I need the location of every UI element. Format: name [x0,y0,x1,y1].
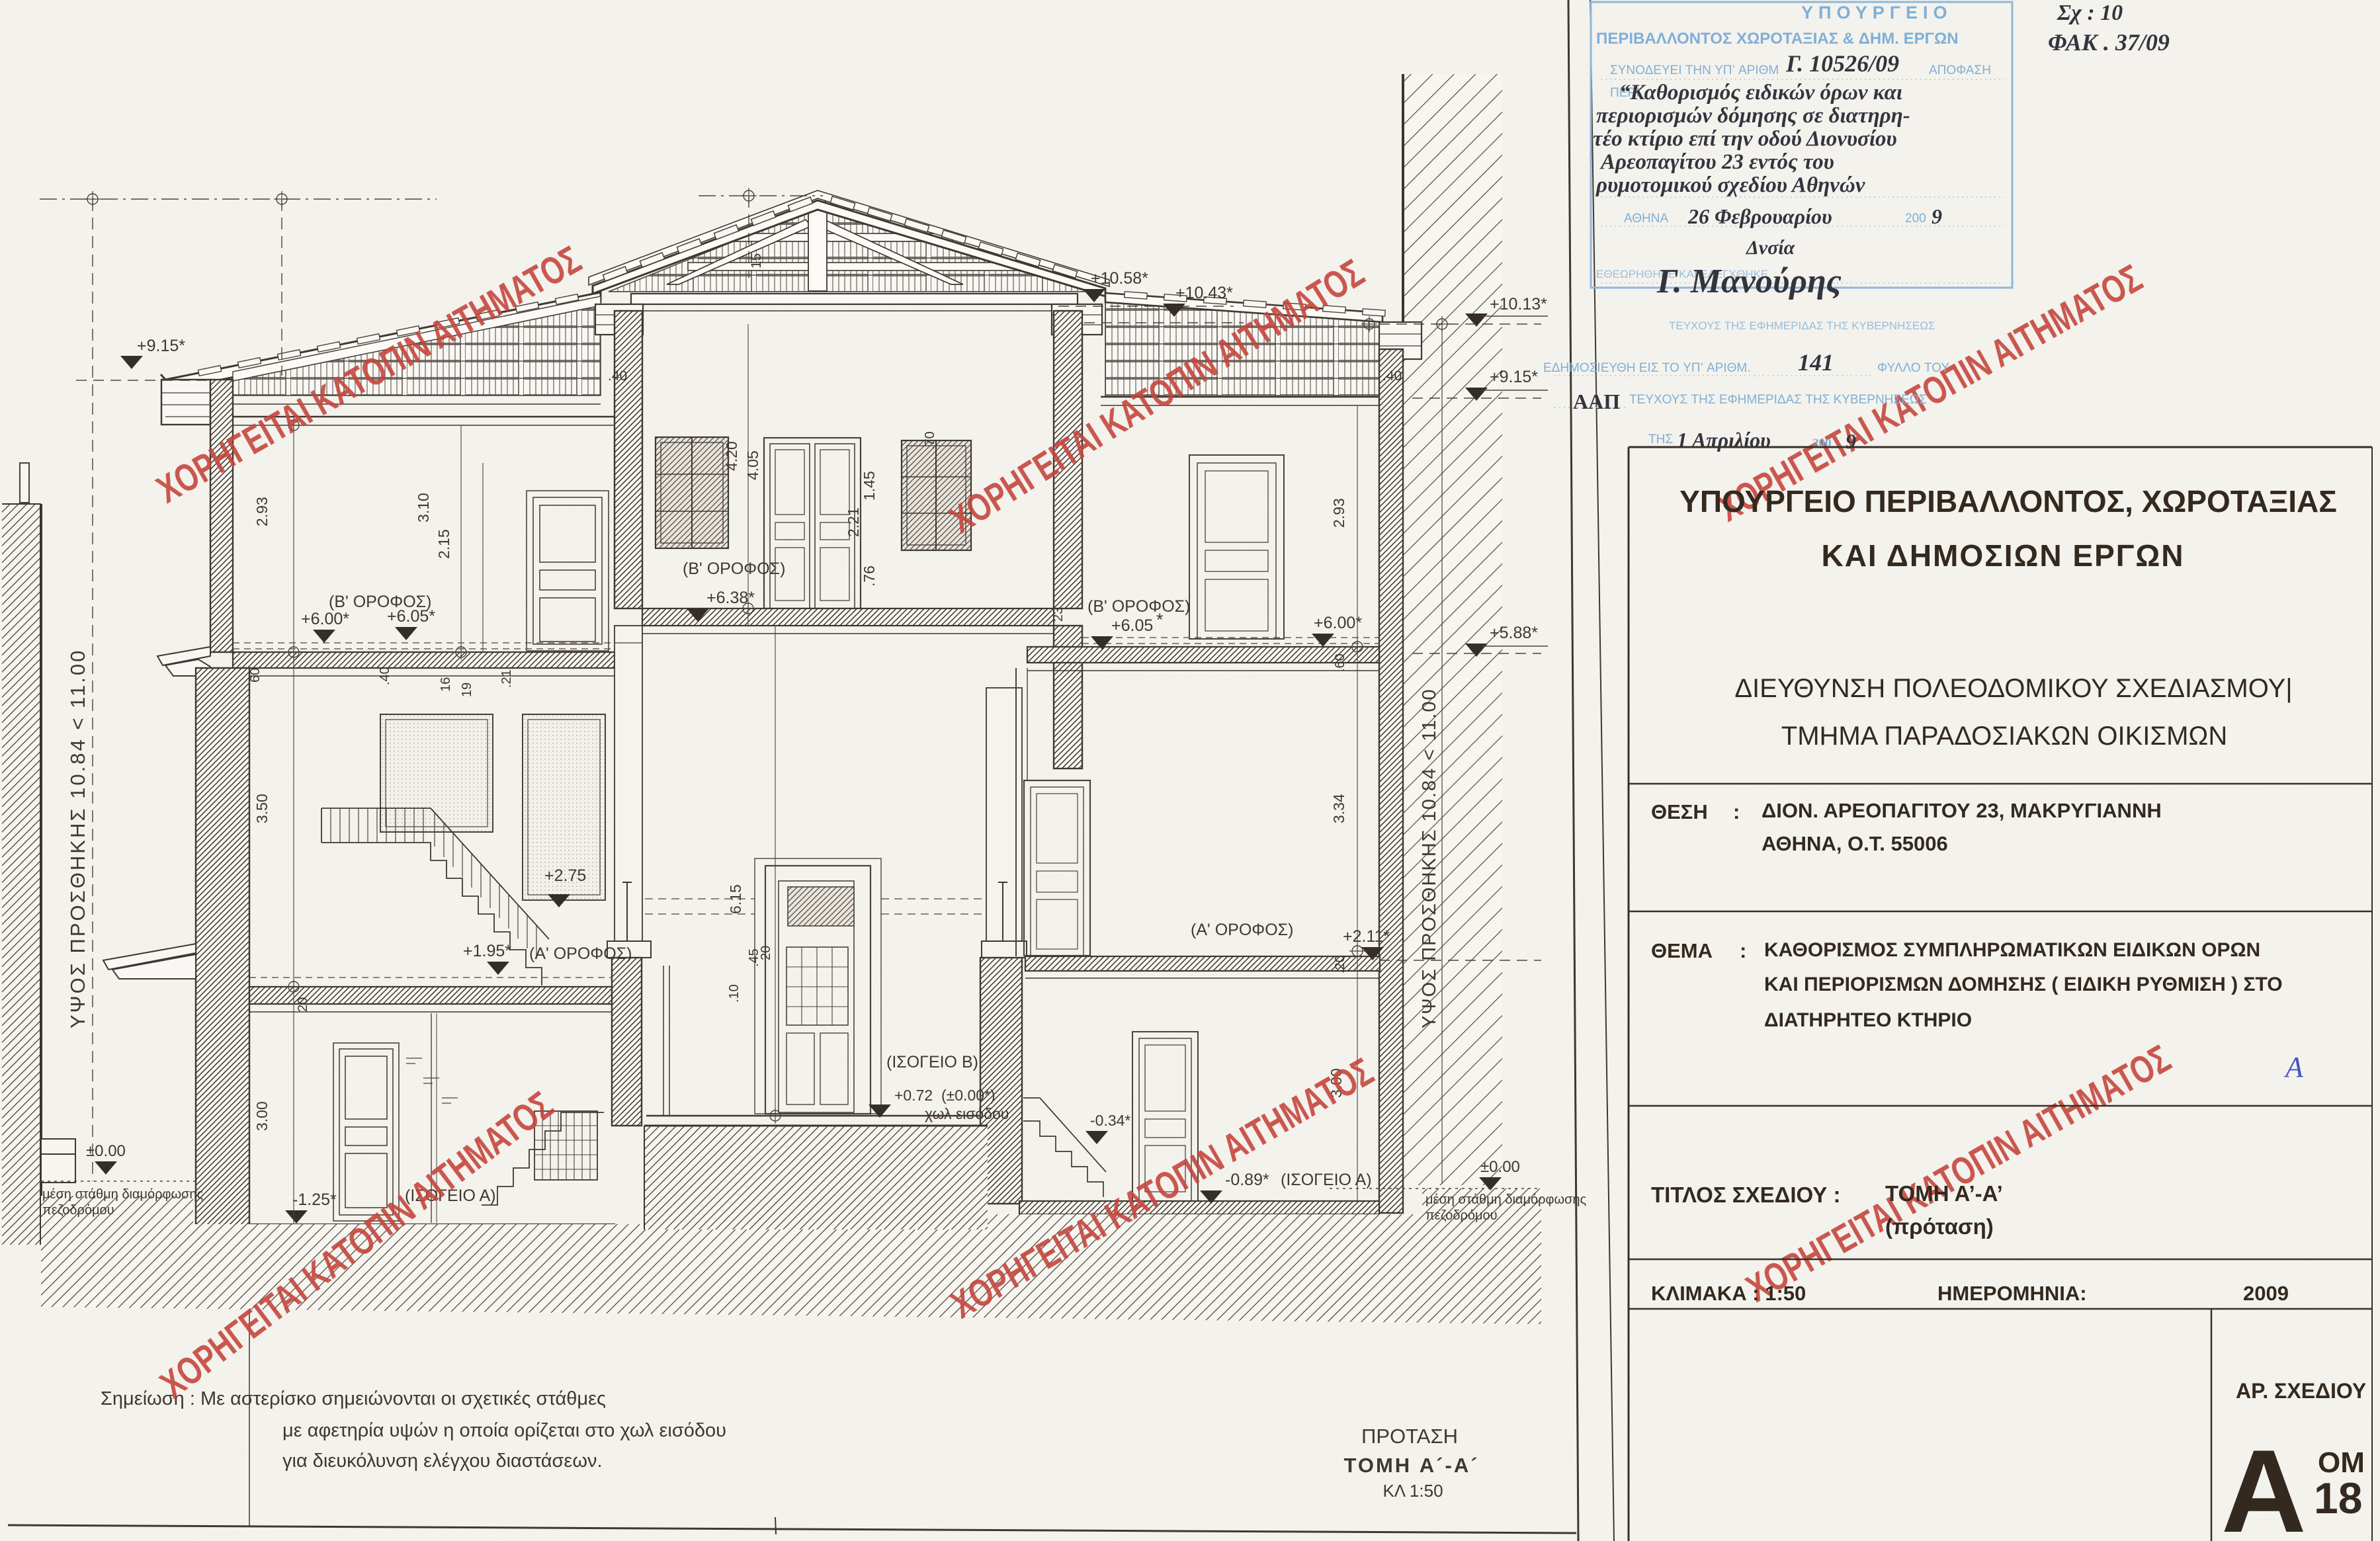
svg-text:+6.05*: +6.05* [387,607,435,626]
svg-text:4.05: 4.05 [744,450,761,480]
svg-text:+10.58*: +10.58* [1091,269,1148,288]
svg-text:ΘΕΣΗ: ΘΕΣΗ [1651,800,1708,823]
svg-text:+6.05: +6.05 [1111,616,1153,635]
svg-text:περιορισμών δόμησης σε διατηρη: περιορισμών δόμησης σε διατηρη- [1596,104,1910,128]
svg-text:ΑΘΗΝΑ, Ο.Τ. 55006: ΑΘΗΝΑ, Ο.Τ. 55006 [1762,832,1948,855]
svg-text:ΑΡ. ΣΧΕΔΙΟΥ: ΑΡ. ΣΧΕΔΙΟΥ [2236,1379,2366,1403]
svg-text:(ΙΣΟΓΕΙΟ Β): (ΙΣΟΓΕΙΟ Β) [886,1053,978,1071]
svg-text:9: 9 [1932,204,1942,228]
svg-text:9: 9 [1846,429,1856,453]
svg-text:ΤΟΜΗ Α’-Α’: ΤΟΜΗ Α’-Α’ [1885,1181,2003,1206]
svg-text:ΑΘΗΝΑ: ΑΘΗΝΑ [1624,212,1668,226]
svg-text:ΘΕΜΑ: ΘΕΜΑ [1651,939,1713,962]
svg-text:200: 200 [1905,212,1926,226]
svg-text:-0.89*: -0.89* [1225,1171,1269,1189]
svg-text:Αρεοπαγίτου 23 εντός του: Αρεοπαγίτου 23 εντός του [1599,150,1834,174]
svg-text:+10.13*: +10.13* [1490,295,1547,313]
svg-text:τέο κτίριο επί την οδού Διονυσ: τέο κτίριο επί την οδού Διονυσίου [1593,127,1897,151]
svg-text::: : [1740,939,1746,962]
svg-text:ΚΑΙ ΔΗΜΟΣΙΩΝ ΕΡΓΩΝ: ΚΑΙ ΔΗΜΟΣΙΩΝ ΕΡΓΩΝ [1821,538,2184,573]
svg-text:3.10: 3.10 [415,493,432,522]
svg-text:1 Απριλίου: 1 Απριλίου [1677,428,1771,452]
svg-text:3.34: 3.34 [1330,794,1347,823]
svg-text:.76: .76 [861,565,878,587]
svg-text:ΚΛΙΜΑΚΑ : 1:50: ΚΛΙΜΑΚΑ : 1:50 [1651,1282,1806,1305]
svg-text:ΑΑΠ: ΑΑΠ [1573,390,1620,413]
svg-text:A: A [2283,1051,2304,1083]
svg-text:+6.00*: +6.00* [1314,614,1362,632]
svg-text:+2.11*: +2.11* [1343,927,1390,946]
svg-text:26 Φεβρουαρίου: 26 Φεβρουαρίου [1687,204,1832,228]
svg-text:6.15: 6.15 [727,884,744,914]
svg-text:με αφετηρία υψών η οποία ορίζε: με αφετηρία υψών η οποία ορίζεται στο χω… [282,1420,726,1441]
svg-text:πεζοδρόμου: πεζοδρόμου [1425,1208,1498,1223]
svg-text:(Α' ΟΡΟΦΟΣ): (Α' ΟΡΟΦΟΣ) [1191,921,1293,939]
svg-text:18: 18 [2314,1474,2362,1522]
svg-text:ΥΨΟΣ ΠΡΟΣΘΗΚΗΣ 10.84 < 11.00: ΥΨΟΣ ΠΡΟΣΘΗΚΗΣ 10.84 < 11.00 [66,649,89,1028]
svg-text:.60: .60 [1333,653,1347,672]
svg-text:ρυμοτομικού σχεδίου Αθηνών: ρυμοτομικού σχεδίου Αθηνών [1595,173,1865,197]
svg-text:±0.00: ±0.00 [1480,1158,1520,1176]
svg-text:ΣΥΝΟΔΕΥΕΙ ΤΗΝ ΥΠ’ ΑΡΙΘΜ: ΣΥΝΟΔΕΥΕΙ ΤΗΝ ΥΠ’ ΑΡΙΘΜ [1610,63,1779,77]
svg-text:-1.25*: -1.25* [292,1190,337,1209]
svg-text:3.50: 3.50 [253,794,271,823]
svg-text:“Καθορισμός ειδικών όρων και: “Καθορισμός ειδικών όρων και [1619,81,1902,104]
svg-text:20: 20 [759,946,773,960]
svg-text:+9.15*: +9.15* [137,337,185,355]
svg-text:+6.00*: +6.00* [301,610,349,628]
svg-text:16: 16 [439,677,453,692]
svg-text:ΔΙΑΤΗΡΗΤΕΟ ΚΤΗΡΙΟ: ΔΙΑΤΗΡΗΤΕΟ ΚΤΗΡΙΟ [1764,1009,1972,1031]
svg-text:1.45: 1.45 [861,471,878,501]
svg-text:+1.95*: +1.95* [463,942,511,960]
svg-text:23: 23 [1051,607,1066,622]
svg-text:ΤΗΣ: ΤΗΣ [1648,433,1673,446]
svg-text:ΤΟΜΗ Α´-Α´: ΤΟΜΗ Α´-Α´ [1343,1454,1479,1477]
svg-text:ΠΡΟΤΑΣΗ: ΠΡΟΤΑΣΗ [1361,1425,1458,1448]
svg-text:(πρόταση): (πρόταση) [1885,1214,1994,1239]
svg-text:ΥΨΟΣ ΠΡΟΣΘΗΚΗΣ 10.84 < 11.00: ΥΨΟΣ ΠΡΟΣΘΗΚΗΣ 10.84 < 11.00 [1419,688,1440,1028]
svg-text:+2.75: +2.75 [544,866,586,885]
svg-text:ΥΠΟΥΡΓΕΙΟ: ΥΠΟΥΡΓΕΙΟ [1801,3,1953,22]
svg-text:2.21: 2.21 [845,507,862,537]
svg-text:.10: .10 [727,984,742,1003]
svg-text:ΦΑΚ . 37/09: ΦΑΚ . 37/09 [2048,29,2170,56]
svg-text:ΔΙΕΥΘΥΝΣΗ ΠΟΛΕΟΔΟΜΙΚΟΥ ΣΧΕΔΙΑΣ: ΔΙΕΥΘΥΝΣΗ ΠΟΛΕΟΔΟΜΙΚΟΥ ΣΧΕΔΙΑΣΜΟΥ| [1734,674,2292,703]
svg-text:2.93: 2.93 [253,497,271,526]
svg-text:-0.34*: -0.34* [1090,1112,1130,1129]
svg-text:+9.15*: +9.15* [1490,368,1538,386]
svg-text:πεζοδρόμου: πεζοδρόμου [42,1203,114,1218]
svg-text:.15: .15 [749,253,764,272]
svg-text:.20: .20 [1333,955,1347,974]
svg-text:.21: .21 [499,669,514,688]
svg-text:(Β' ΟΡΟΦΟΣ): (Β' ΟΡΟΦΟΣ) [1087,597,1190,616]
svg-text::: : [1733,800,1740,823]
svg-text:2.15: 2.15 [435,529,452,559]
svg-text:ΚΑΙ ΠΕΡΙΟΡΙΣΜΩΝ ΔΟΜΗΣΗΣ ( ΕΙΔΙ: ΚΑΙ ΠΕΡΙΟΡΙΣΜΩΝ ΔΟΜΗΣΗΣ ( ΕΙΔΙΚΗ ΡΥΘΜΙΣΗ… [1764,974,2283,995]
svg-text:+0.72 (±0.00*): +0.72 (±0.00*) [894,1087,996,1104]
svg-text:*: * [1156,610,1164,630]
svg-text:A: A [2221,1425,2307,1541]
svg-text:.70: .70 [923,431,937,450]
svg-text:3.00: 3.00 [253,1101,271,1131]
svg-text:60: 60 [248,668,263,683]
svg-text:20: 20 [296,997,310,1012]
svg-text:ΠΕΡΙΒΑΛΛΟΝΤΟΣ ΧΩΡΟΤΑΞΙΑΣ & ΔΗΜ: ΠΕΡΙΒΑΛΛΟΝΤΟΣ ΧΩΡΟΤΑΞΙΑΣ & ΔΗΜ. ΕΡΓΩΝ [1596,30,1959,48]
svg-text:.40: .40 [1382,368,1402,384]
svg-text:χωλ εισόδου: χωλ εισόδου [925,1105,1009,1122]
svg-text:ΚΑΘΟΡΙΣΜΟΣ ΣΥΜΠΛΗΡΩΜΑΤΙΚΩΝ ΕΙΔ: ΚΑΘΟΡΙΣΜΟΣ ΣΥΜΠΛΗΡΩΜΑΤΙΚΩΝ ΕΙΔΙΚΩΝ ΟΡΩΝ [1764,939,2260,961]
svg-text:+5.88*: +5.88* [1490,624,1538,642]
svg-text:μέση στάθμη διαμόρφωσης: μέση στάθμη διαμόρφωσης [1425,1192,1587,1207]
svg-text:ΥΠΟΥΡΓΕΙΟ ΠΕΡΙΒΑΛΛΟΝΤΟΣ, ΧΩΡΟΤ: ΥΠΟΥΡΓΕΙΟ ΠΕΡΙΒΑΛΛΟΝΤΟΣ, ΧΩΡΟΤΑΞΙΑΣ [1679,484,2337,519]
svg-text:141: 141 [1798,349,1834,376]
svg-text:±0.00: ±0.00 [86,1142,126,1160]
svg-text:για διευκόλυνση ελέγχου διαστά: για διευκόλυνση ελέγχου διαστάσεων. [282,1450,603,1472]
svg-text:ΔΙΟΝ. ΑΡΕΟΠΑΓΙΤΟΥ 23, ΜΑΚΡΥΓΙΑ: ΔΙΟΝ. ΑΡΕΟΠΑΓΙΤΟΥ 23, ΜΑΚΡΥΓΙΑΝΝΗ [1762,799,2162,822]
svg-text:ΤΙΤΛΟΣ ΣΧΕΔΙΟΥ :: ΤΙΤΛΟΣ ΣΧΕΔΙΟΥ : [1651,1183,1840,1207]
svg-text:ΗΜΕΡΟΜΗΝΙΑ:: ΗΜΕΡΟΜΗΝΙΑ: [1937,1282,2087,1305]
svg-text:Γ. 10526/09: Γ. 10526/09 [1785,50,1899,77]
svg-text:Σχ : 10: Σχ : 10 [2057,1,2123,25]
svg-text:200: 200 [1812,437,1832,450]
svg-text:(Α' ΟΡΟΦΟΣ): (Α' ΟΡΟΦΟΣ) [529,944,632,963]
svg-text:19: 19 [460,683,474,697]
svg-text:ΕΔΗΜΟΣΙΕΥΘΗ ΕΙΣ ΤΟ ΥΠ’ ΑΡΙΘΜ.: ΕΔΗΜΟΣΙΕΥΘΗ ΕΙΣ ΤΟ ΥΠ’ ΑΡΙΘΜ. [1543,361,1750,375]
svg-text:ΤΜΗΜΑ ΠΑΡΑΔΟΣΙΑΚΩΝ ΟΙΚΙΣΜΩΝ: ΤΜΗΜΑ ΠΑΡΑΔΟΣΙΑΚΩΝ ΟΙΚΙΣΜΩΝ [1781,722,2227,751]
svg-text:.40: .40 [608,368,627,384]
svg-text:Δνσία: Δνσία [1746,237,1795,259]
svg-text:.40: .40 [378,667,392,685]
svg-text:4.20: 4.20 [723,441,740,471]
svg-text:(ΙΣΟΓΕΙΟ Α): (ΙΣΟΓΕΙΟ Α) [1281,1171,1372,1189]
svg-text:ΤΕΥΧΟΥΣ ΤΗΣ ΕΦΗΜΕΡΙΔΑΣ ΤΗΣ ΚΥΒ: ΤΕΥΧΟΥΣ ΤΗΣ ΕΦΗΜΕΡΙΔΑΣ ΤΗΣ ΚΥΒΕΡΝΗΣΕΩΣ [1669,319,1935,332]
svg-text:+10.43*: +10.43* [1175,284,1233,302]
svg-text:ΑΠΟΦΑΣΗ: ΑΠΟΦΑΣΗ [1929,63,1991,77]
svg-text:μέση στάθμη διαμόρφωσης: μέση στάθμη διαμόρφωσης [42,1187,204,1202]
svg-text:+6.38*: +6.38* [706,589,755,607]
svg-text:ΤΕΥΧΟΥΣ ΤΗΣ ΕΦΗΜΕΡΙΔΑΣ ΤΗΣ ΚΥΒ: ΤΕΥΧΟΥΣ ΤΗΣ ΕΦΗΜΕΡΙΔΑΣ ΤΗΣ ΚΥΒΕΡΝΗΣΕΩΣ [1629,393,1927,407]
svg-text:ΚΛ 1:50: ΚΛ 1:50 [1382,1481,1443,1501]
svg-text:Γ. Μανούρης: Γ. Μανούρης [1656,263,1842,300]
svg-text:2009: 2009 [2243,1282,2289,1305]
svg-text:ΦΥΛΛΟ ΤΟΥ: ΦΥΛΛΟ ΤΟΥ [1877,361,1949,375]
svg-text:(Β' ΟΡΟΦΟΣ): (Β' ΟΡΟΦΟΣ) [683,560,785,578]
svg-text:2.93: 2.93 [1330,498,1347,528]
